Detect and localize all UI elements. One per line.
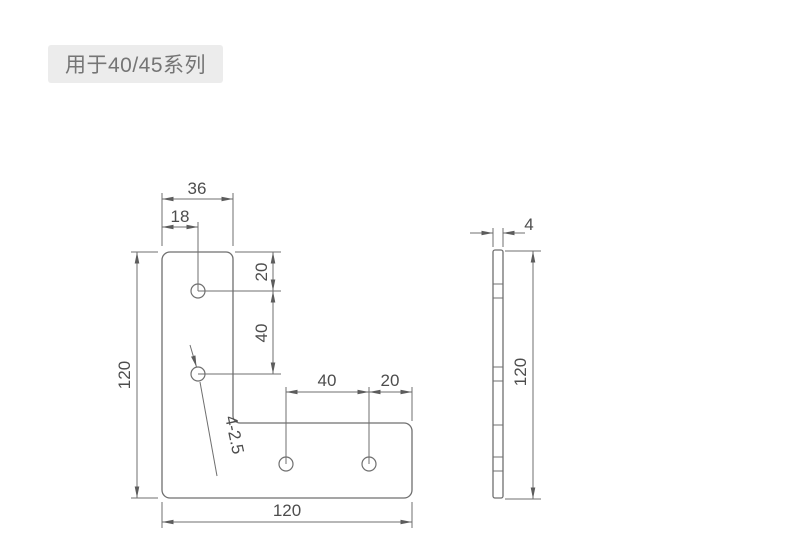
dim-label-thickness: 4 (524, 215, 533, 234)
dim-label-hole-offset-x: 18 (171, 207, 190, 226)
dim-label-hole-edge-offset: 20 (381, 371, 400, 390)
dimension-width: 120 (162, 501, 412, 528)
dim-label-hole-pitch-bottom: 40 (318, 371, 337, 390)
dim-label-hole-top-offset: 20 (252, 263, 271, 282)
dim-label-width: 120 (273, 501, 301, 520)
side-profile-outline (493, 250, 503, 498)
dimension-height: 120 (115, 252, 158, 498)
dim-label-side-height: 120 (511, 358, 530, 386)
side-view: 4 120 (470, 215, 541, 499)
dimension-side-height: 120 (505, 251, 541, 499)
technical-drawing: 36 18 20 40 120 (0, 0, 804, 557)
dim-label-height: 120 (115, 361, 134, 389)
front-view: 36 18 20 40 120 (115, 179, 412, 528)
dimension-thickness: 4 (470, 215, 534, 247)
dim-label-hole-pitch-left: 40 (252, 324, 271, 343)
dimension-hole-edge-offset: 20 (369, 371, 412, 421)
dim-label-top-width: 36 (188, 179, 207, 198)
